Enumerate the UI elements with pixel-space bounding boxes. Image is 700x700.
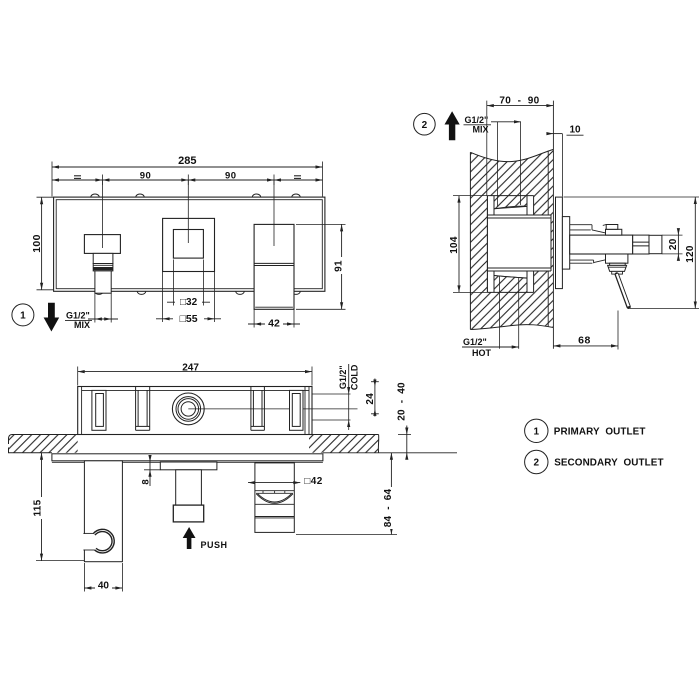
svg-text:SECONDARY OUTLET: SECONDARY OUTLET [554,458,663,469]
svg-text:2: 2 [422,120,428,131]
svg-text:24: 24 [365,393,376,405]
svg-text:40: 40 [98,580,110,591]
svg-text:MIX: MIX [74,320,90,330]
svg-text:90: 90 [225,170,237,181]
svg-text:G1/2": G1/2" [465,115,489,125]
svg-text:70 - 90: 70 - 90 [499,96,539,107]
svg-text:G1/2": G1/2" [66,311,90,321]
svg-text:PRIMARY OUTLET: PRIMARY OUTLET [554,427,646,438]
svg-text:1: 1 [20,311,26,322]
svg-text:247: 247 [182,362,199,373]
svg-text:115: 115 [33,499,44,516]
svg-text:120: 120 [685,245,696,263]
svg-text:285: 285 [178,155,196,167]
svg-text:20 - 40: 20 - 40 [397,382,408,421]
svg-text:MIX: MIX [473,125,489,135]
svg-text:2: 2 [534,458,540,469]
svg-text:G1/2": G1/2" [338,365,348,389]
svg-text:1: 1 [534,427,540,438]
svg-text:68: 68 [578,335,591,347]
svg-text:90: 90 [140,170,152,181]
svg-text:HOT: HOT [472,348,492,358]
svg-text:COLD: COLD [349,364,359,390]
svg-text:□42: □42 [304,476,322,487]
svg-text:104: 104 [449,236,460,254]
svg-text:□32: □32 [180,297,198,308]
svg-text:100: 100 [31,234,43,252]
svg-text:G1/2": G1/2" [463,337,487,347]
svg-text:□55: □55 [180,313,198,325]
svg-text:10: 10 [570,124,582,135]
svg-text:42: 42 [268,317,280,329]
svg-text:PUSH: PUSH [201,540,228,550]
svg-text:8: 8 [141,479,152,484]
svg-text:20: 20 [668,238,679,250]
svg-text:91: 91 [333,260,344,272]
svg-text:84 - 64: 84 - 64 [383,489,394,528]
